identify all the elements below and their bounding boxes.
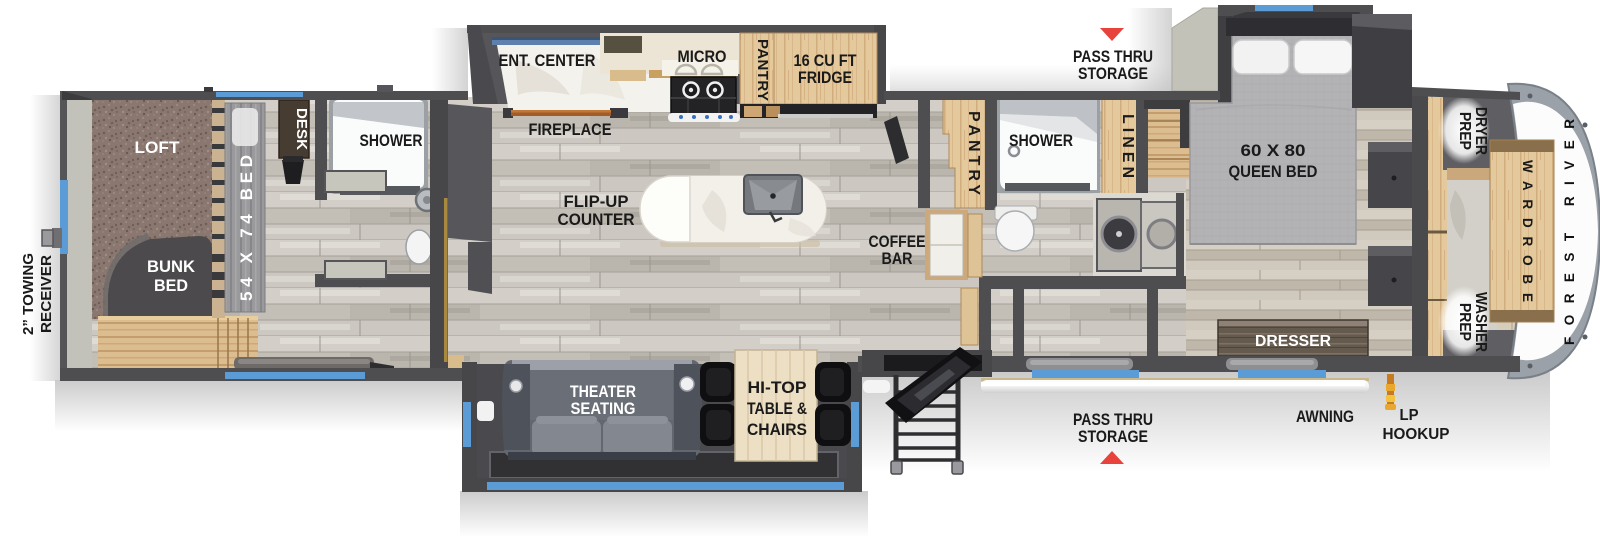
svg-text:BED: BED — [154, 276, 188, 295]
svg-text:COUNTER: COUNTER — [558, 210, 635, 229]
svg-text:PANTRY: PANTRY — [754, 39, 771, 101]
svg-text:ENT. CENTER: ENT. CENTER — [499, 51, 596, 70]
svg-text:STORAGE: STORAGE — [1078, 64, 1148, 83]
svg-text:FRIDGE: FRIDGE — [798, 68, 852, 87]
svg-text:BAR: BAR — [882, 249, 913, 268]
svg-text:SHOWER: SHOWER — [1009, 131, 1073, 150]
svg-text:FIREPLACE: FIREPLACE — [529, 120, 612, 139]
svg-text:QUEEN BED: QUEEN BED — [1229, 162, 1318, 181]
svg-text:RECEIVER: RECEIVER — [38, 255, 55, 333]
svg-text:MICRO: MICRO — [678, 47, 727, 66]
svg-text:SHOWER: SHOWER — [360, 131, 423, 150]
svg-text:DESK: DESK — [293, 108, 310, 150]
svg-text:DRESSER: DRESSER — [1255, 333, 1331, 350]
svg-text:2” TOWING: 2” TOWING — [20, 253, 37, 335]
svg-text:CHAIRS: CHAIRS — [747, 420, 807, 439]
svg-text:LINEN: LINEN — [1119, 114, 1136, 178]
svg-text:STORAGE: STORAGE — [1078, 427, 1148, 446]
svg-text:DRYER: DRYER — [1472, 107, 1489, 155]
svg-text:PREP: PREP — [1456, 112, 1473, 150]
svg-text:FLIP-UP: FLIP-UP — [564, 192, 629, 211]
svg-text:LOFT: LOFT — [135, 138, 181, 157]
svg-text:HI-TOP: HI-TOP — [748, 378, 807, 397]
svg-text:LP: LP — [1400, 407, 1419, 424]
svg-text:TABLE &: TABLE & — [747, 399, 807, 418]
svg-text:BUNK: BUNK — [147, 257, 196, 276]
svg-text:SEATING: SEATING — [571, 399, 636, 418]
svg-text:60 X 80: 60 X 80 — [1241, 141, 1306, 160]
svg-text:AWNING: AWNING — [1296, 407, 1354, 426]
svg-text:WASHER: WASHER — [1472, 292, 1489, 352]
svg-text:HOOKUP: HOOKUP — [1383, 426, 1450, 443]
svg-text:PREP: PREP — [1456, 303, 1473, 341]
